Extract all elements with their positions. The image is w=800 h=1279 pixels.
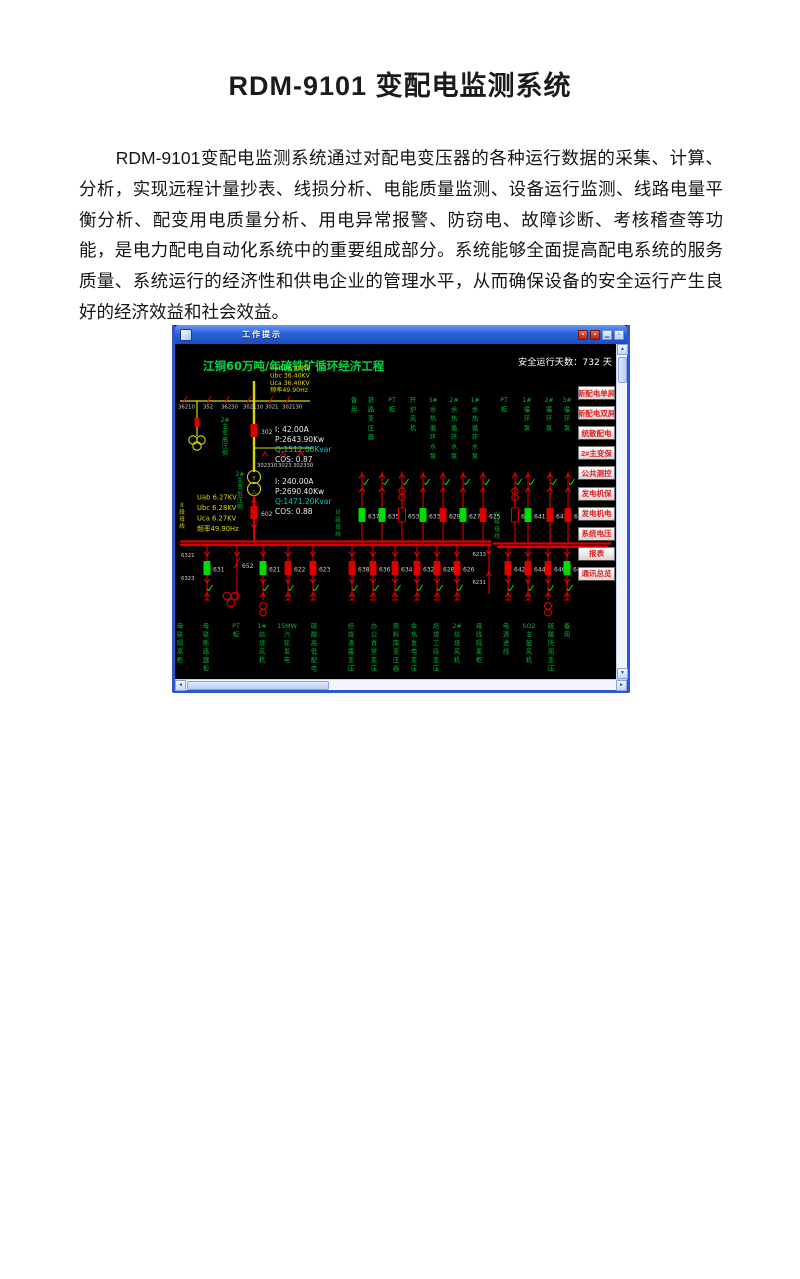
menu-button-7[interactable]: 发电机电 xyxy=(578,507,615,521)
bottom-feeder-label: 母联断路器柜 xyxy=(203,622,210,673)
hscroll-thumb[interactable] xyxy=(187,681,329,690)
hv-voltage-line: Uab 36.40KV xyxy=(270,365,311,372)
breaker-number: 621 xyxy=(269,567,281,574)
earth-switch-icon xyxy=(548,585,554,591)
breaker-number: 642 xyxy=(514,567,526,574)
earth-switch-icon xyxy=(363,479,369,485)
breaker-634[interactable]: 634 xyxy=(392,561,413,575)
earth-switch-icon xyxy=(551,479,557,485)
earth-switch-icon xyxy=(508,585,514,591)
breaker-628[interactable]: 628 xyxy=(434,561,455,575)
document-heading: RDM-9101 变配电监测系统 xyxy=(0,64,800,103)
menu-button-6[interactable]: 发电机保 xyxy=(578,487,615,501)
safe-days-text: 安全运行天数：732 天 xyxy=(518,356,612,368)
lv-voltage-line: Ubc 6.28KV xyxy=(197,504,237,512)
menu-button-2[interactable]: 新配电双屏 xyxy=(578,406,615,420)
single-line-diagram: 江铜60万吨/年硫铁矿循环经济工程安全运行天数：732 天Uab 36.40KV… xyxy=(175,344,616,679)
bottom-feeder-label: SO2主鼓风机 xyxy=(523,623,536,664)
page: RDM-9101 变配电监测系统 RDM-9101变配电监测系统通过对配电变压器… xyxy=(0,0,800,1279)
breaker-number: 629 xyxy=(449,514,461,521)
breaker-636[interactable]: 636 xyxy=(370,561,391,575)
menu-button-5[interactable]: 公共测控 xyxy=(578,466,615,480)
top-feeder-label: 3#循环泵 xyxy=(562,397,571,432)
breaker-602[interactable] xyxy=(251,506,258,519)
breaker-number: 638 xyxy=(358,567,370,574)
bottom-feeder-label: 电源进线 xyxy=(503,621,510,656)
breaker-629[interactable]: 629 xyxy=(440,508,461,522)
breaker-635[interactable]: 635 xyxy=(379,508,400,522)
breaker-number: 628 xyxy=(443,567,455,574)
earth-switch-icon xyxy=(569,479,575,485)
breaker-number: 633 xyxy=(429,514,441,521)
top-feeder-label: 2#余热循环水泵 xyxy=(449,397,458,460)
equipment-circle-icon xyxy=(223,592,231,600)
bottom-feeder-label: 原料库变压器 xyxy=(393,622,400,673)
breaker-number: 632 xyxy=(423,567,435,574)
alarm-button-1[interactable]: ▪ xyxy=(578,330,588,340)
breaker-643[interactable]: 643 xyxy=(547,508,568,522)
breaker-number: 635 xyxy=(388,514,400,521)
bay-number: 302110 xyxy=(243,405,264,411)
lv-measurement-line: I: 240.00A xyxy=(275,477,314,486)
breaker-number: 302 xyxy=(261,429,273,436)
horizontal-scrollbar[interactable]: ◄ ► xyxy=(175,679,627,690)
breaker-637[interactable]: 637 xyxy=(359,508,380,522)
menu-button-9[interactable]: 报表 xyxy=(578,547,615,561)
earth-switch-icon xyxy=(403,479,409,485)
document-paragraph: RDM-9101变配电监测系统通过对配电变压器的各种运行数据的采集、计算、分析，… xyxy=(79,143,723,328)
menu-button-1[interactable]: 新配电单屏 xyxy=(578,386,615,400)
equipment-circle-icon xyxy=(545,603,552,610)
close-button[interactable]: ▫ xyxy=(614,330,624,340)
earth-switch-icon xyxy=(528,585,534,591)
breaker-number: 602 xyxy=(261,511,273,518)
lv-measurement-line: Q:1471.20Kvar xyxy=(275,497,332,506)
top-feeder-label: PT柜 xyxy=(500,397,508,413)
hv-measurement-line: I: 42.00A xyxy=(275,425,310,434)
hv-voltage-line: 频率49.90Hz xyxy=(270,386,308,394)
scada-window: 工作提示 ▪ ▪ ▁ ▫ 江铜60万吨/年硫铁矿循环经济工程安全运行天数：732… xyxy=(172,325,630,693)
breaker-number: 637 xyxy=(368,514,380,521)
bottom-feeder-label: 1#焙烧风机 xyxy=(257,623,266,664)
equipment-circle-icon xyxy=(197,436,205,444)
star-winding-icon: Y xyxy=(251,476,256,482)
bus-pt-number: 6231 xyxy=(473,580,486,586)
top-feeder-label: PT柜 xyxy=(388,397,396,413)
bottom-feeder-label: 2#焙烧风机 xyxy=(452,623,461,664)
bottom-feeder-label: 硫酸高低配电 xyxy=(311,621,318,673)
minimize-button[interactable]: ▁ xyxy=(602,330,612,340)
top-feeder-label: 1#余热循环水泵 xyxy=(470,397,479,460)
breaker-number: 641 xyxy=(534,514,546,521)
earth-switch-icon xyxy=(484,479,490,485)
breaker-646[interactable]: 646 xyxy=(545,561,566,575)
lv-voltage-line: Uca 6.27KV xyxy=(197,515,237,523)
scroll-down-icon[interactable]: ▼ xyxy=(617,668,628,679)
breaker-number: 625 xyxy=(489,514,501,521)
equipment-circle-icon xyxy=(189,436,197,444)
bay-number: 352 xyxy=(203,405,213,411)
bus-pt-number: 6233 xyxy=(473,552,486,558)
bus-pt-number: 6323 xyxy=(181,576,194,582)
earth-switch-icon xyxy=(373,585,379,591)
hv-voltage-line: Uca 36.40KV xyxy=(270,380,310,387)
bay-number: 36210 xyxy=(178,405,195,411)
lv-voltage-line: 频率49.90Hz xyxy=(197,524,239,533)
earth-switch-icon xyxy=(207,585,213,591)
scroll-right-icon[interactable]: ► xyxy=(616,680,627,691)
breaker-number: 652 xyxy=(242,563,254,570)
breaker-631[interactable]: 631 xyxy=(204,561,225,575)
bottom-feeder-label: 办公食堂变压 xyxy=(371,621,378,673)
delta-winding-icon: △ xyxy=(252,490,256,495)
breaker-number: 631 xyxy=(213,567,225,574)
hv-measurement-line: P:2643.90Kw xyxy=(275,435,324,444)
bottom-feeder-label: 15MW汽轮发电 xyxy=(277,623,297,664)
earth-switch-icon xyxy=(288,585,294,591)
bottom-feeder-label: 余热发电变压 xyxy=(411,621,418,673)
earth-switch-icon xyxy=(424,479,430,485)
bottom-feeder-label: 硫酸所用变压 xyxy=(548,621,555,673)
breaker-number: 627 xyxy=(469,514,481,521)
breaker-632[interactable]: 632 xyxy=(414,561,435,575)
vertical-scrollbar[interactable]: ▲ ▼ xyxy=(616,344,627,679)
bottom-feeder-label: 备用 xyxy=(564,621,571,639)
alarm-button-2[interactable]: ▪ xyxy=(590,330,600,340)
breaker-642[interactable]: 642 xyxy=(505,561,526,575)
scada-canvas: 江铜60万吨/年硫铁矿循环经济工程安全运行天数：732 天Uab 36.40KV… xyxy=(175,344,616,679)
bottom-feeder-label: PT柜 xyxy=(232,623,240,639)
top-feeder-label: 1#循环泵 xyxy=(522,397,531,432)
bottom-feeder-label: 母联隔离柜 xyxy=(177,622,184,664)
window-icon xyxy=(180,329,192,341)
equipment-circle-icon xyxy=(260,603,267,610)
lv-measurement-line: P:2690.40Kw xyxy=(275,487,324,496)
lv-side-label: 2#主变低压侧 xyxy=(236,471,245,511)
earth-switch-icon xyxy=(567,585,573,591)
breaker-number: 634 xyxy=(401,567,413,574)
earth-switch-icon xyxy=(352,585,358,591)
breaker-638[interactable]: 638 xyxy=(349,561,370,575)
bay-number: 3023 xyxy=(278,463,291,469)
bus-ii-label: II段母线 xyxy=(179,503,185,530)
bay-number: 36230 xyxy=(221,405,238,411)
breaker-number: 653 xyxy=(408,514,420,521)
top-feeder-label: 2#循环泵 xyxy=(544,397,553,432)
equipment-circle-icon xyxy=(545,609,552,616)
hv-side-label: 2#主变高压侧 xyxy=(221,417,230,457)
earth-switch-icon xyxy=(444,479,450,485)
bottom-feeder-label: 焙烧工段变压 xyxy=(433,621,440,673)
earth-switch-icon xyxy=(395,585,401,591)
breaker-number: 626 xyxy=(463,567,475,574)
earth-switch-icon xyxy=(464,479,470,485)
breaker-626[interactable]: 626 xyxy=(454,561,475,575)
breaker-302[interactable] xyxy=(251,424,258,437)
breaker-653[interactable]: 653 xyxy=(399,508,420,522)
scroll-left-icon[interactable]: ◄ xyxy=(175,680,186,691)
window-title: 工作提示 xyxy=(242,329,282,340)
top-feeder-label: 铁路变压器 xyxy=(368,395,375,441)
breaker-number: 622 xyxy=(294,567,306,574)
breaker-633[interactable]: 633 xyxy=(420,508,441,522)
breaker-644[interactable]: 644 xyxy=(525,561,546,575)
bay-number: 302130 xyxy=(282,405,303,411)
earth-switch-icon xyxy=(383,479,389,485)
vscroll-thumb[interactable] xyxy=(618,357,627,383)
menu-button-8[interactable]: 系统电压 xyxy=(578,527,615,541)
bay-number: 302310 xyxy=(257,463,278,469)
breaker-627[interactable]: 627 xyxy=(460,508,481,522)
earth-switch-icon xyxy=(437,585,443,591)
breaker-621[interactable]: 621 xyxy=(260,561,281,575)
breaker-622[interactable]: 622 xyxy=(285,561,306,575)
earth-switch-icon xyxy=(516,479,522,485)
breaker-number: 644 xyxy=(534,567,546,574)
bay-number: 3021 xyxy=(265,405,278,411)
lv-measurement-line: COS: 0.88 xyxy=(275,507,313,516)
earth-switch-icon xyxy=(529,479,535,485)
breaker-641[interactable]: 641 xyxy=(525,508,546,522)
bottom-feeder-label: 焙烧渣露变压 xyxy=(348,621,355,673)
bay-number: 302330 xyxy=(293,463,314,469)
earth-switch-icon xyxy=(417,585,423,591)
breaker-number: 623 xyxy=(319,567,331,574)
equipment-circle-icon xyxy=(193,442,201,450)
bus-pt-number: 6321 xyxy=(181,553,194,559)
breaker-number: 636 xyxy=(379,567,391,574)
bottom-feeder-label: 母线隔离柜 xyxy=(476,622,483,664)
hv-voltage-line: Ubc 36.40KV xyxy=(270,372,311,379)
equipment-circle-icon xyxy=(227,599,235,607)
menu-button-10[interactable]: 通讯总览 xyxy=(578,567,615,581)
breaker-623[interactable]: 623 xyxy=(310,561,331,575)
earth-switch-icon xyxy=(313,585,319,591)
disconnector-icon xyxy=(262,452,268,456)
lv-voltage-line: Uab 6.27KV xyxy=(197,494,237,502)
earth-switch-icon xyxy=(457,585,463,591)
menu-button-3[interactable]: 统散配电 xyxy=(578,426,615,440)
scroll-up-icon[interactable]: ▲ xyxy=(617,344,628,355)
bus-iii-label: III段母线 xyxy=(335,510,341,538)
menu-button-4[interactable]: 2#主变保 xyxy=(578,446,615,460)
breaker-625[interactable]: 625 xyxy=(480,508,501,522)
window-titlebar: 工作提示 ▪ ▪ ▁ ▫ xyxy=(175,325,627,344)
top-feeder-label: 备用 xyxy=(351,395,358,413)
equipment-circle-icon xyxy=(260,609,267,616)
branch-breaker[interactable] xyxy=(195,418,200,427)
top-feeder-label: 开炉风机 xyxy=(410,396,417,432)
earth-switch-icon xyxy=(263,585,269,591)
equipment-circle-icon xyxy=(231,592,239,600)
top-feeder-label: 3#余热循环水泵 xyxy=(428,397,437,460)
